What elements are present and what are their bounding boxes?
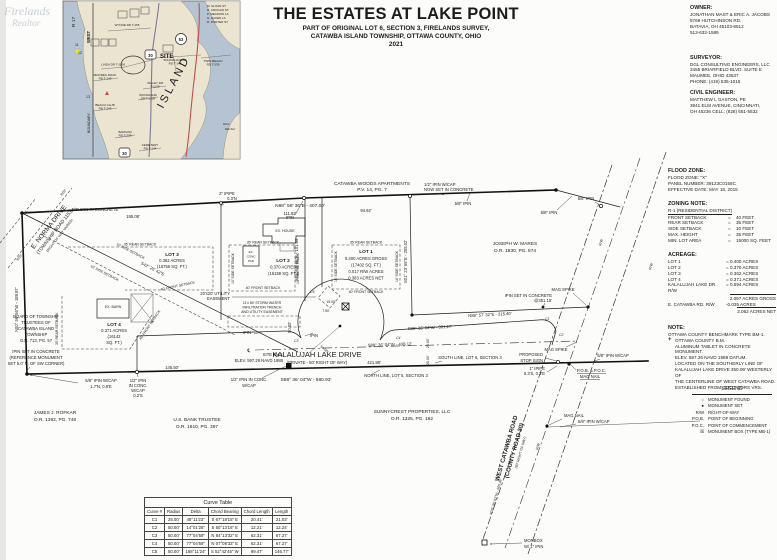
svg-text:CONC: CONC <box>247 255 257 259</box>
acreage-net: 2.062 ACRES NET <box>668 307 777 314</box>
flood-heading: FLOOD ZONE: <box>668 168 776 175</box>
bearing-215: N88° 57' 32"E - 215.40' <box>468 311 512 318</box>
acreage-heading: ACREAGE: <box>668 252 776 259</box>
flood-line: EFFECTIVE DATE: MAY 18, 2015 <box>668 187 776 193</box>
svg-text:RD T-144: RD T-144 <box>144 147 157 151</box>
svg-text:C1: C1 <box>545 317 550 321</box>
svg-text:WYNNE RD T-255: WYNNE RD T-255 <box>115 23 140 27</box>
ipin-label-b: IPIN <box>243 330 251 335</box>
svg-text:(17402 SQ. FT.): (17402 SQ. FT.) <box>351 263 381 268</box>
svg-text:LOT 2: LOT 2 <box>276 258 290 264</box>
svg-text:@351.15': @351.15' <box>534 298 552 303</box>
surveyor-line: PHONE: (419) 535-1015 <box>690 79 776 85</box>
svg-text:12: 12 <box>78 51 82 55</box>
zoning-row: MIN. LOT AREA=15000 SQ. FEET <box>668 238 772 244</box>
svg-text:EX.: EX. <box>249 250 254 254</box>
svg-text:C4: C4 <box>396 336 401 340</box>
acreage-block: ACREAGE: LOT 1= 0.400 ACRES LOT 2= 0.370… <box>668 252 776 315</box>
rw-label-2: R/W <box>16 253 24 261</box>
svg-text:R. PORTER ST: R. PORTER ST <box>207 20 228 24</box>
svg-text:11: 11 <box>75 43 79 47</box>
svg-text:(REFERENCE MONUMENT: (REFERENCE MONUMENT <box>9 355 62 360</box>
centerline-symbol: ℄ <box>246 348 251 354</box>
note-bm-title: OTTAWA COUNTY B.M. <box>675 338 725 344</box>
svg-text:P.V. 14, PG. 7: P.V. 14, PG. 7 <box>357 187 387 193</box>
svg-text:10' SIDE SETBACK: 10' SIDE SETBACK <box>334 250 338 282</box>
bearing-438: S88° 36' 04"W - 438.12' <box>368 341 413 348</box>
svg-text:0.2'S: 0.2'S <box>133 393 143 398</box>
svg-text:35' REAR SETBACK: 35' REAR SETBACK <box>55 312 59 345</box>
bearing-580: S88° 36' 04"W - 580.93' <box>281 377 332 383</box>
wc-bearing: N28° 36' 02"W - 569.46' <box>489 478 503 515</box>
lot4-text: LOT 4 0.371 ACRES (16142 SQ. FT.) <box>101 322 127 345</box>
north-bearing: N88° 58' 36"E - 407.00' <box>275 203 325 209</box>
pin-nw-label: 5/8" IPIN IN CONCRETE <box>72 207 119 212</box>
curve-row: C350.00'77°04'59"N 84°13'32" E62.31'67.2… <box>145 532 292 540</box>
curve-row: C550.00'168°11'24"S 52°42'45" W99.47'146… <box>145 548 292 556</box>
benchmark-note-block: NOTE: OTTAWA COUNTY BENCHMARK TYPE BM-1.… <box>668 325 776 391</box>
svg-text:0.362 ACRES: 0.362 ACRES <box>159 258 185 263</box>
road-subtitle: (PRIVATE - 50' RIGHT OF WAY) <box>287 360 348 365</box>
svg-text:0.371 ACRES: 0.371 ACRES <box>101 328 127 333</box>
svg-text:1.7'N, 0.8'E: 1.7'N, 0.8'E <box>90 384 112 389</box>
svg-text:O.R. 1830, PG. 874: O.R. 1830, PG. 874 <box>494 248 536 254</box>
board-of-trustees-label: BOARD OF TOWNSHIP TRUSTEES OF CATAWBA IS… <box>13 314 59 343</box>
svg-text:(16158 SQ. FT.): (16158 SQ. FT.) <box>268 271 298 276</box>
svg-text:West: West <box>223 122 231 126</box>
legend-block: LEGEND ○MONUMENT FOUND ●MONUMENT SET R/W… <box>688 386 776 436</box>
mag-spike-b: MAG SPIKE <box>544 347 567 352</box>
curve-table: Curve Table Curve # Radius Delta Chord B… <box>144 497 292 556</box>
svg-text:LOT 1: LOT 1 <box>359 249 373 255</box>
svg-text:10' SIDE SETBACK: 10' SIDE SETBACK <box>296 252 300 284</box>
monument-box-symbol <box>342 303 349 310</box>
curve-row: C125.00'48°11'23"S 67°18'15" E20.41'21.0… <box>145 516 292 524</box>
sw-cap-label: 5/8" IPIN W/CAP <box>85 378 117 383</box>
watermark-line1: Firelands <box>4 4 50 19</box>
zoning-district: R-1 (RESIDENTIAL DISTRICT) <box>668 208 732 215</box>
stop-sign-label: PROPOSED <box>519 352 543 357</box>
svg-text:(15756 SQ. FT.): (15756 SQ. FT.) <box>157 264 187 269</box>
svg-text:RD T-145: RD T-145 <box>169 62 182 66</box>
svg-text:W/ 1" IPIN: W/ 1" IPIN <box>524 544 543 549</box>
svg-text:O.R. 1325, PG. 162: O.R. 1325, PG. 162 <box>391 416 433 422</box>
legend-item: ☒MONUMENT BOX (TYPE MB-1) <box>688 429 776 435</box>
svg-text:13: 13 <box>86 95 90 99</box>
usbank-owner: U.S. BANK TRUSTEE <box>173 417 220 423</box>
utility-easement-square <box>318 286 340 308</box>
svg-text:0.3'N: 0.3'N <box>227 196 237 201</box>
monbox-label: MONBOX <box>524 538 543 543</box>
acreage-row: KALALUJAH LAKE DR. R/W= 0.594 ACRES <box>668 282 776 294</box>
svg-text:C5: C5 <box>310 290 315 294</box>
dim-15: 15.00' <box>326 300 336 304</box>
curve-row: C450.00'77°04'59"N 07°08'33" E62.31'67.2… <box>145 540 292 548</box>
rofkar-owner: JAMES J. ROFKAR <box>34 410 77 416</box>
sunnycrest-owner: SUNNYCREST PROPERTIES, LLC <box>374 409 451 415</box>
svg-text:NOW SET IN CONCRETE: NOW SET IN CONCRETE <box>424 187 474 192</box>
note-body: ALUMINUM TABLET IN CONCRETE MONUMENT. EL… <box>675 344 776 391</box>
svg-text:TOWNSHIP: TOWNSHIP <box>25 332 48 337</box>
svg-text:AND UTILITY EASEMENT: AND UTILITY EASEMENT <box>241 310 283 314</box>
monbox-symbol <box>482 540 487 545</box>
dim-145: 145.50' <box>165 365 179 370</box>
ex-barn-label: EX. BARN <box>105 305 122 309</box>
svg-text:CATAWBA ISLAND: CATAWBA ISLAND <box>18 326 54 331</box>
owner-block: OWNER: JONATHAN MAST & ERIC A. JACOBS 57… <box>690 5 776 36</box>
plat-title: THE ESTATES AT LAKE POINT <box>248 6 544 23</box>
owner-heading: OWNER: <box>690 5 776 12</box>
curve-table-title: Curve Table <box>145 498 292 508</box>
svg-text:C3: C3 <box>294 339 299 343</box>
scan-edge <box>0 0 6 560</box>
svg-text:(16142: (16142 <box>107 334 121 339</box>
west-catawba-road-lines <box>482 152 666 554</box>
benchmark-cross-icon: + <box>668 338 675 344</box>
mares-owner: JOSEPH W. MARES <box>493 241 538 247</box>
route-30-label: 30 <box>148 53 153 58</box>
pob-label: P.O.B. & P.O.C. <box>577 368 606 373</box>
plat-sheet: Firelands Realtor <box>0 0 777 560</box>
mag-spike-a: MAG SPIKE <box>551 287 574 292</box>
monument-box-icon: ☒ <box>688 429 708 435</box>
svg-text:INFILTRATION TRENCH: INFILTRATION TRENCH <box>243 306 282 310</box>
contact-column: OWNER: JONATHAN MAST & ERIC A. JACOBS 57… <box>690 5 776 115</box>
svg-text:EASEMENT: EASEMENT <box>207 296 230 301</box>
svg-text:RD T-243: RD T-243 <box>99 107 112 111</box>
lot1-text: LOT 1 0.400 ACRES GROSS (17402 SQ. FT.) … <box>345 249 387 281</box>
watermark-logo: Firelands Realtor <box>4 4 50 29</box>
svg-text:35' REAR SETBACK: 35' REAR SETBACK <box>124 243 157 247</box>
flood-zone-block: FLOOD ZONE: FLOOD ZONE: "X" PANEL NUMBER… <box>668 168 776 193</box>
plat-subtitle-1: PART OF ORIGINAL LOT 6, SECTION 3, FIREL… <box>248 25 544 33</box>
svg-text:35' REAR SETBACK: 35' REAR SETBACK <box>350 241 383 245</box>
drive-centerline <box>255 341 578 350</box>
inset-location-map: 30 SITE 30 53 ISLAND R 17 WEST BOUNDARY … <box>63 1 240 159</box>
zoning-heading: ZONING NOTE: <box>668 201 776 208</box>
acreage-gross: 2.097 ACRES GROSS <box>668 294 777 301</box>
dim-94: 94.92' <box>360 208 371 213</box>
east-bearing: S01° 23' 56"E - 205.02' <box>403 240 408 283</box>
surveyor-block: SURVEYOR: DGL CONSULTING ENGINEERS, LLC … <box>690 55 776 86</box>
svg-text:LINDA DR T-1108: LINDA DR T-1108 <box>101 63 125 67</box>
bearing-391: S88° 36' 04"W - 391.27' <box>408 324 453 331</box>
north-line-lot5: NORTH LINE, LOT 5, SECTION 3 <box>364 373 428 378</box>
pin58-c: 5/8" IPIN <box>578 196 595 201</box>
plat-subtitle-2: CATAWBA ISLAND TOWNSHIP, OTTAWA COUNTY, … <box>248 33 544 41</box>
engineer-block: CIVIL ENGINEER: MATTHEW L GASTON, PE 394… <box>690 90 776 115</box>
svg-text:SQ. FT.): SQ. FT.) <box>106 340 122 345</box>
svg-text:RD T-140: RD T-140 <box>99 77 112 81</box>
svg-text:0.370 ACRES: 0.370 ACRES <box>270 265 296 270</box>
svg-text:MAG NAIL: MAG NAIL <box>580 374 601 379</box>
dim-25a: 25.00' <box>426 338 430 348</box>
svg-text:0.017 R/W ACRES: 0.017 R/W ACRES <box>348 269 383 274</box>
owner-line: 513-633-1589 <box>690 30 776 36</box>
svg-text:35' REAR SETBACK: 35' REAR SETBACK <box>247 241 280 245</box>
svg-text:DR T-1108: DR T-1108 <box>141 97 156 101</box>
svg-text:0.3'S, 0.3'E: 0.3'S, 0.3'E <box>524 371 545 376</box>
dim-195: 195.08' <box>126 214 140 219</box>
west-label: WEST <box>86 30 91 43</box>
plat-year: 2021 <box>248 41 544 49</box>
rw-label-5: R/W <box>535 442 541 450</box>
svg-text:STOP SIGN: STOP SIGN <box>520 358 543 363</box>
survey-boundary <box>22 190 700 427</box>
dim-7: 7.50' <box>322 309 330 313</box>
note-heading: NOTE: <box>668 325 776 332</box>
svg-text:IPIN SET IN CONCRETE: IPIN SET IN CONCRETE <box>12 349 60 354</box>
svg-text:10' SIDE SETBACK: 10' SIDE SETBACK <box>231 252 235 284</box>
site-bm-label: SITE BM 1 <box>263 352 284 357</box>
svg-text:TRUSTEES OF: TRUSTEES OF <box>21 320 51 325</box>
apartments-label: CATAWBA WOODS APARTMENTS <box>334 181 410 187</box>
svg-text:O.R. 713, PG. 57: O.R. 713, PG. 57 <box>20 338 53 343</box>
svg-text:10' SIDE SETBACK: 10' SIDE SETBACK <box>90 264 120 282</box>
west-catawba-label: WEST CATAWBA ROAD (COUNTY ROAD 30) (60' … <box>495 415 532 486</box>
zoning-block: ZONING NOTE: R-1 (RESIDENTIAL DISTRICT) … <box>668 201 776 244</box>
svg-text:O.R. 1610, PG. 397: O.R. 1610, PG. 397 <box>176 424 218 430</box>
curve-row: C250.00'14°01'25"S 50°13'16" E12.21'12.2… <box>145 524 292 532</box>
dim-25b: 25.00' <box>426 355 430 365</box>
legend-title: LEGEND <box>692 386 772 395</box>
pin58-b: 5/8" IPIN <box>541 210 558 215</box>
svg-text:10' SIDE SETBACK: 10' SIDE SETBACK <box>395 250 399 282</box>
cap58-right: 5/8" IPIN W/CAP <box>597 353 629 358</box>
cap58-bottom: 5/8" IPIN W/CAP <box>578 419 610 424</box>
dim-90: 90.00' <box>287 322 292 333</box>
rw-label-4: R/W <box>648 262 654 270</box>
reference-monument-label: IPIN SET IN CONCRETE (REFERENCE MONUMENT… <box>8 349 65 366</box>
route-53-label: 53 <box>179 37 184 42</box>
engineer-line: OH 45236 CELL: (828) 551-5532 <box>690 109 776 115</box>
svg-text:BOARD OF TOWNSHIP: BOARD OF TOWNSHIP <box>13 314 59 319</box>
title-block: THE ESTATES AT LAKE POINT PART OF ORIGIN… <box>248 6 544 49</box>
ipin-label-c: IPIN <box>310 333 318 338</box>
svg-text:PAD: PAD <box>248 259 255 263</box>
svg-text:W/CAP: W/CAP <box>242 383 256 388</box>
svg-text:Harbor: Harbor <box>224 127 236 131</box>
south-line-lot6: SOUTH LINE, LOT 6, SECTION 3 <box>438 355 502 360</box>
notes-column: FLOOD ZONE: FLOOD ZONE: "X" PANEL NUMBER… <box>668 168 776 391</box>
svg-text:0.400 ACRES GROSS: 0.400 ACRES GROSS <box>345 256 387 261</box>
conc-cap2-label: 1/2" IPIN IN CONC. <box>231 377 268 382</box>
culdesac-bulb <box>298 279 384 340</box>
svg-text:T-1108: T-1108 <box>150 85 159 89</box>
conc-pad-label: EX. CONC PAD <box>247 250 257 263</box>
curve-table-header: Curve # Radius Delta Chord Bearing Chord… <box>145 508 292 516</box>
road-name: KALALUJAH LAKE DRIVE <box>272 350 361 359</box>
r17-label: R 17 <box>71 17 77 27</box>
dim-421: 421.98' <box>367 360 381 365</box>
dim-111: 111.92' <box>284 211 297 216</box>
lot3-text: LOT 3 0.362 ACRES (15756 SQ. FT.) <box>157 252 187 269</box>
ex-house-label: EX. HOUSE <box>275 229 295 233</box>
survey-labels: 5/8" IPIN IN CONCRETE 195.08' 2" IPIPE 0… <box>8 181 654 549</box>
watermark-line2: Realtor <box>12 19 50 29</box>
plat-drawing: 30 SITE 30 53 ISLAND R 17 WEST BOUNDARY … <box>0 0 777 560</box>
svg-text:C2: C2 <box>559 333 564 337</box>
engineer-heading: CIVIL ENGINEER: <box>690 90 776 97</box>
surveyor-heading: SURVEYOR: <box>690 55 776 62</box>
svg-text:RD T-229: RD T-229 <box>119 134 132 138</box>
mag-nail-label: MAG NAIL <box>564 413 585 418</box>
svg-text:O.R. 1392, PG. 748: O.R. 1392, PG. 748 <box>34 417 76 423</box>
pin58-a: 5/8" IPIN <box>455 201 472 206</box>
svg-text:40' FRONT SETBACK: 40' FRONT SETBACK <box>246 286 281 290</box>
boundary-label: BOUNDARY <box>87 113 91 133</box>
route-30-label-2: 30 <box>122 151 127 156</box>
rw-label-3: R/W <box>598 238 604 246</box>
svg-text:ELEV. 597.26 NAVD 1988: ELEV. 597.26 NAVD 1988 <box>235 358 284 363</box>
svg-text:0.383 ACRES NET: 0.383 ACRES NET <box>348 276 384 281</box>
svg-text:40' FRONT SETBACK: 40' FRONT SETBACK <box>349 290 384 294</box>
svg-text:RD T-239: RD T-239 <box>207 63 220 67</box>
storm-label: 11'x 80' STORM WATER <box>243 301 282 305</box>
svg-text:SET 5.0' N. OF SW CORNER): SET 5.0' N. OF SW CORNER) <box>8 361 65 366</box>
